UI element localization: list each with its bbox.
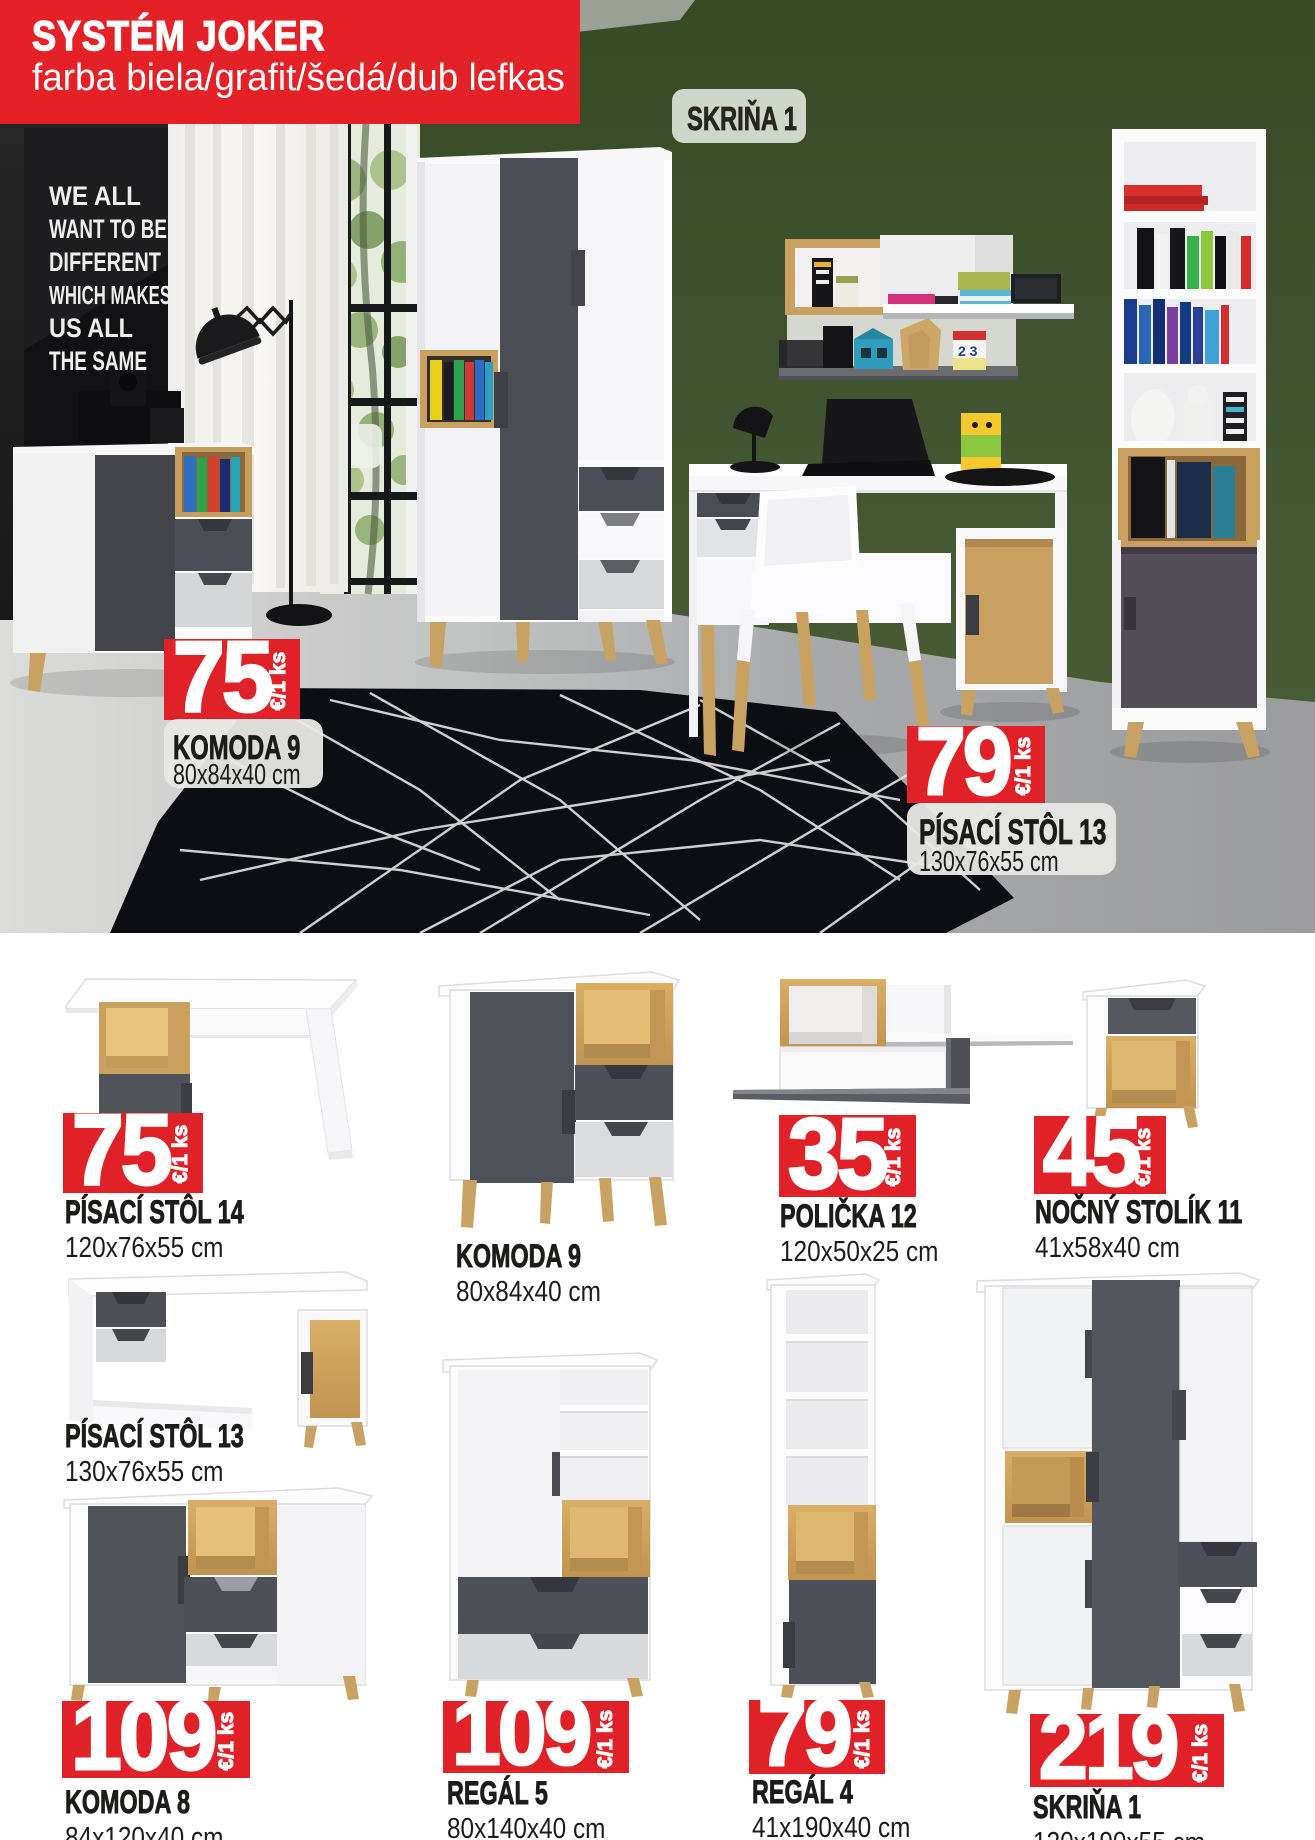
svg-text:DIFFERENT: DIFFERENT xyxy=(49,247,161,277)
svg-text:WE ALL: WE ALL xyxy=(49,181,141,211)
svg-text:2 3: 2 3 xyxy=(958,343,978,359)
svg-text:US ALL: US ALL xyxy=(49,313,133,343)
svg-text:WHICH MAKES: WHICH MAKES xyxy=(49,280,171,310)
svg-text:WANT TO BE: WANT TO BE xyxy=(49,214,167,244)
